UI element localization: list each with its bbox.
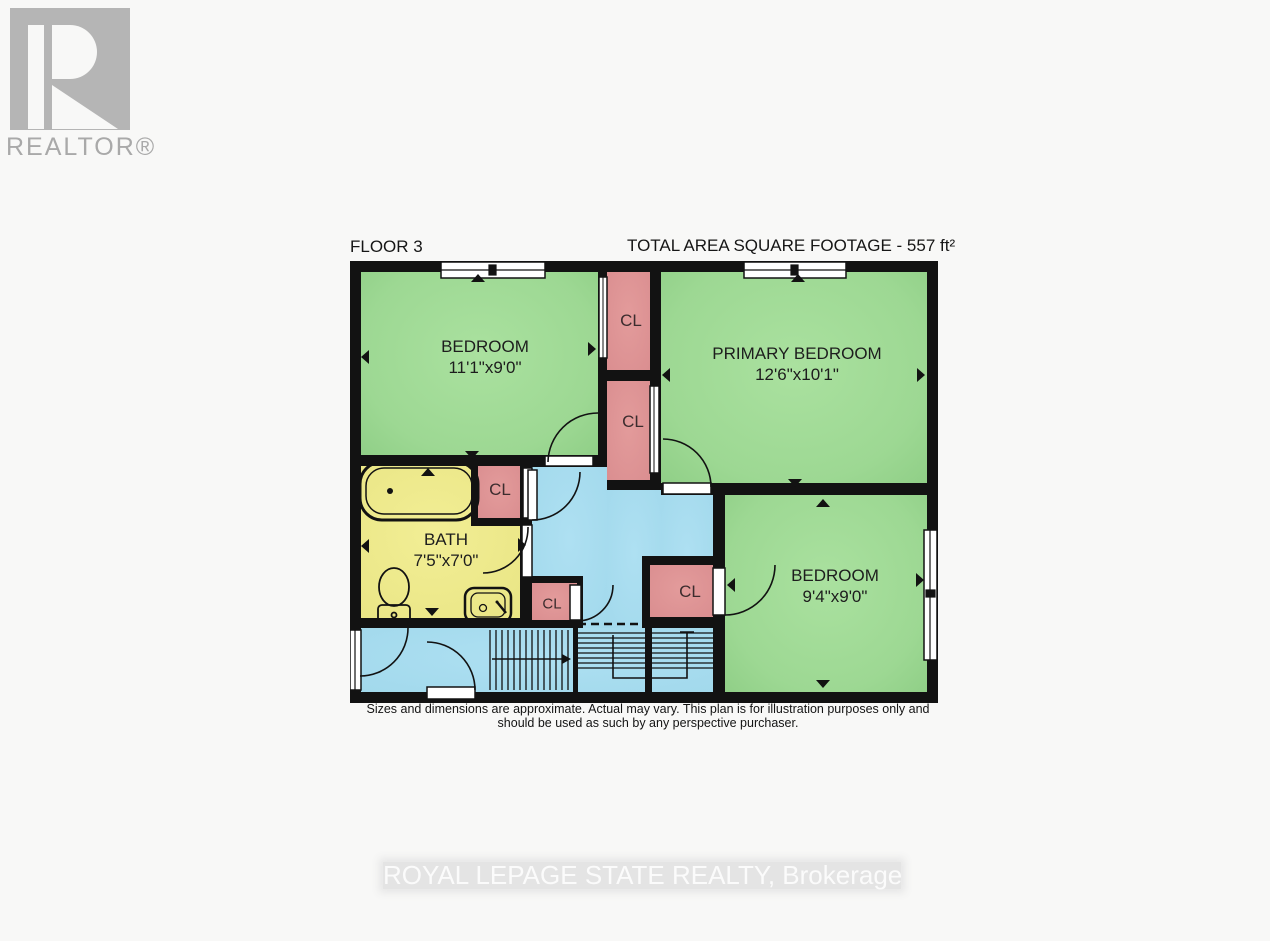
floor-label: FLOOR 3: [350, 237, 423, 257]
disclaimer-line-1: Sizes and dimensions are approximate. Ac…: [348, 703, 948, 717]
plan-graphics: [350, 261, 938, 703]
label-closet-lower-middle: CL: [622, 412, 644, 432]
window-mullions: [355, 265, 935, 690]
room-dimensions: 9'4"x9'0": [791, 586, 879, 607]
toilet-icon: [378, 568, 410, 625]
room-name: BATH: [414, 529, 479, 550]
room-name: BEDROOM: [791, 565, 879, 586]
window-icon: [350, 262, 937, 690]
disclaimer-line-2: should be used as such by any perspectiv…: [348, 717, 948, 731]
room-dimensions: 7'5"x7'0": [414, 550, 479, 571]
room-dimensions: 11'1"x9'0": [441, 357, 529, 378]
realtor-logo-text: REALTOR®: [6, 133, 156, 162]
bathtub-icon: [360, 462, 478, 520]
label-bedroom-bottom-right: BEDROOM 9'4"x9'0": [791, 565, 879, 607]
label-closet-bedroom-side: CL: [679, 582, 701, 602]
stairs: [490, 630, 713, 690]
brokerage-watermark: ROYAL LEPAGE STATE REALTY, Brokerage: [383, 862, 901, 889]
disclaimer: Sizes and dimensions are approximate. Ac…: [348, 703, 948, 730]
total-area-label: TOTAL AREA SQUARE FOOTAGE - 557 ft²: [627, 236, 955, 256]
label-bedroom-top-left: BEDROOM 11'1"x9'0": [441, 336, 529, 378]
realtor-logo-icon: [10, 8, 130, 130]
room-dimensions: 12'6"x10'1": [712, 364, 881, 385]
sink-icon: [465, 588, 511, 622]
room-name: BEDROOM: [441, 336, 529, 357]
label-primary-bedroom: PRIMARY BEDROOM 12'6"x10'1": [712, 343, 881, 385]
label-closet-top-middle: CL: [620, 311, 642, 331]
label-closet-bath-side: CL: [489, 480, 511, 500]
room-name: PRIMARY BEDROOM: [712, 343, 881, 364]
label-bathroom: BATH 7'5"x7'0": [414, 529, 479, 571]
label-closet-hall: CL: [542, 596, 561, 613]
floor-plan: BEDROOM 11'1"x9'0" PRIMARY BEDROOM 12'6"…: [350, 261, 938, 703]
